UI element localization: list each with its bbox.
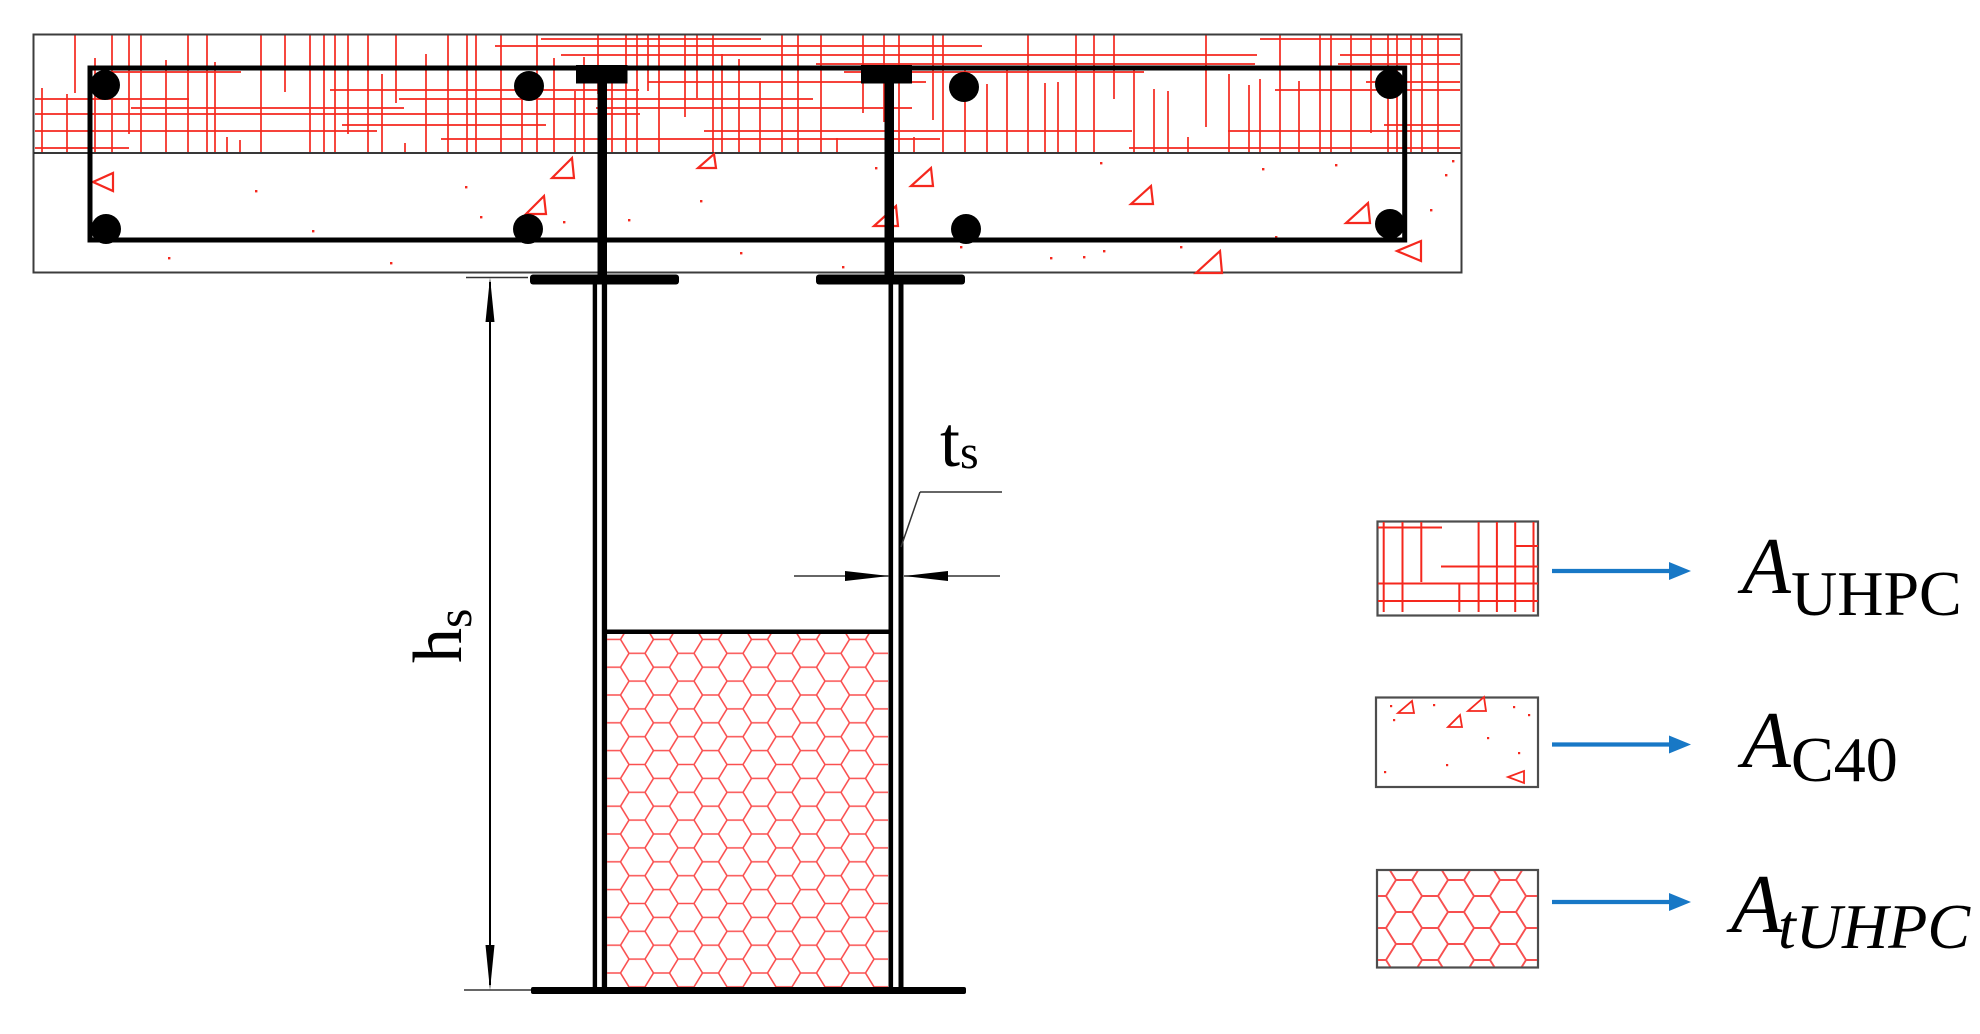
svg-text:C40: C40 bbox=[1791, 724, 1898, 795]
svg-text:tUHPC: tUHPC bbox=[1778, 891, 1971, 962]
svg-text:A: A bbox=[1726, 858, 1783, 951]
svg-text:UHPC: UHPC bbox=[1791, 558, 1962, 629]
svg-text:A: A bbox=[1737, 523, 1792, 611]
svg-text:A: A bbox=[1737, 697, 1792, 785]
